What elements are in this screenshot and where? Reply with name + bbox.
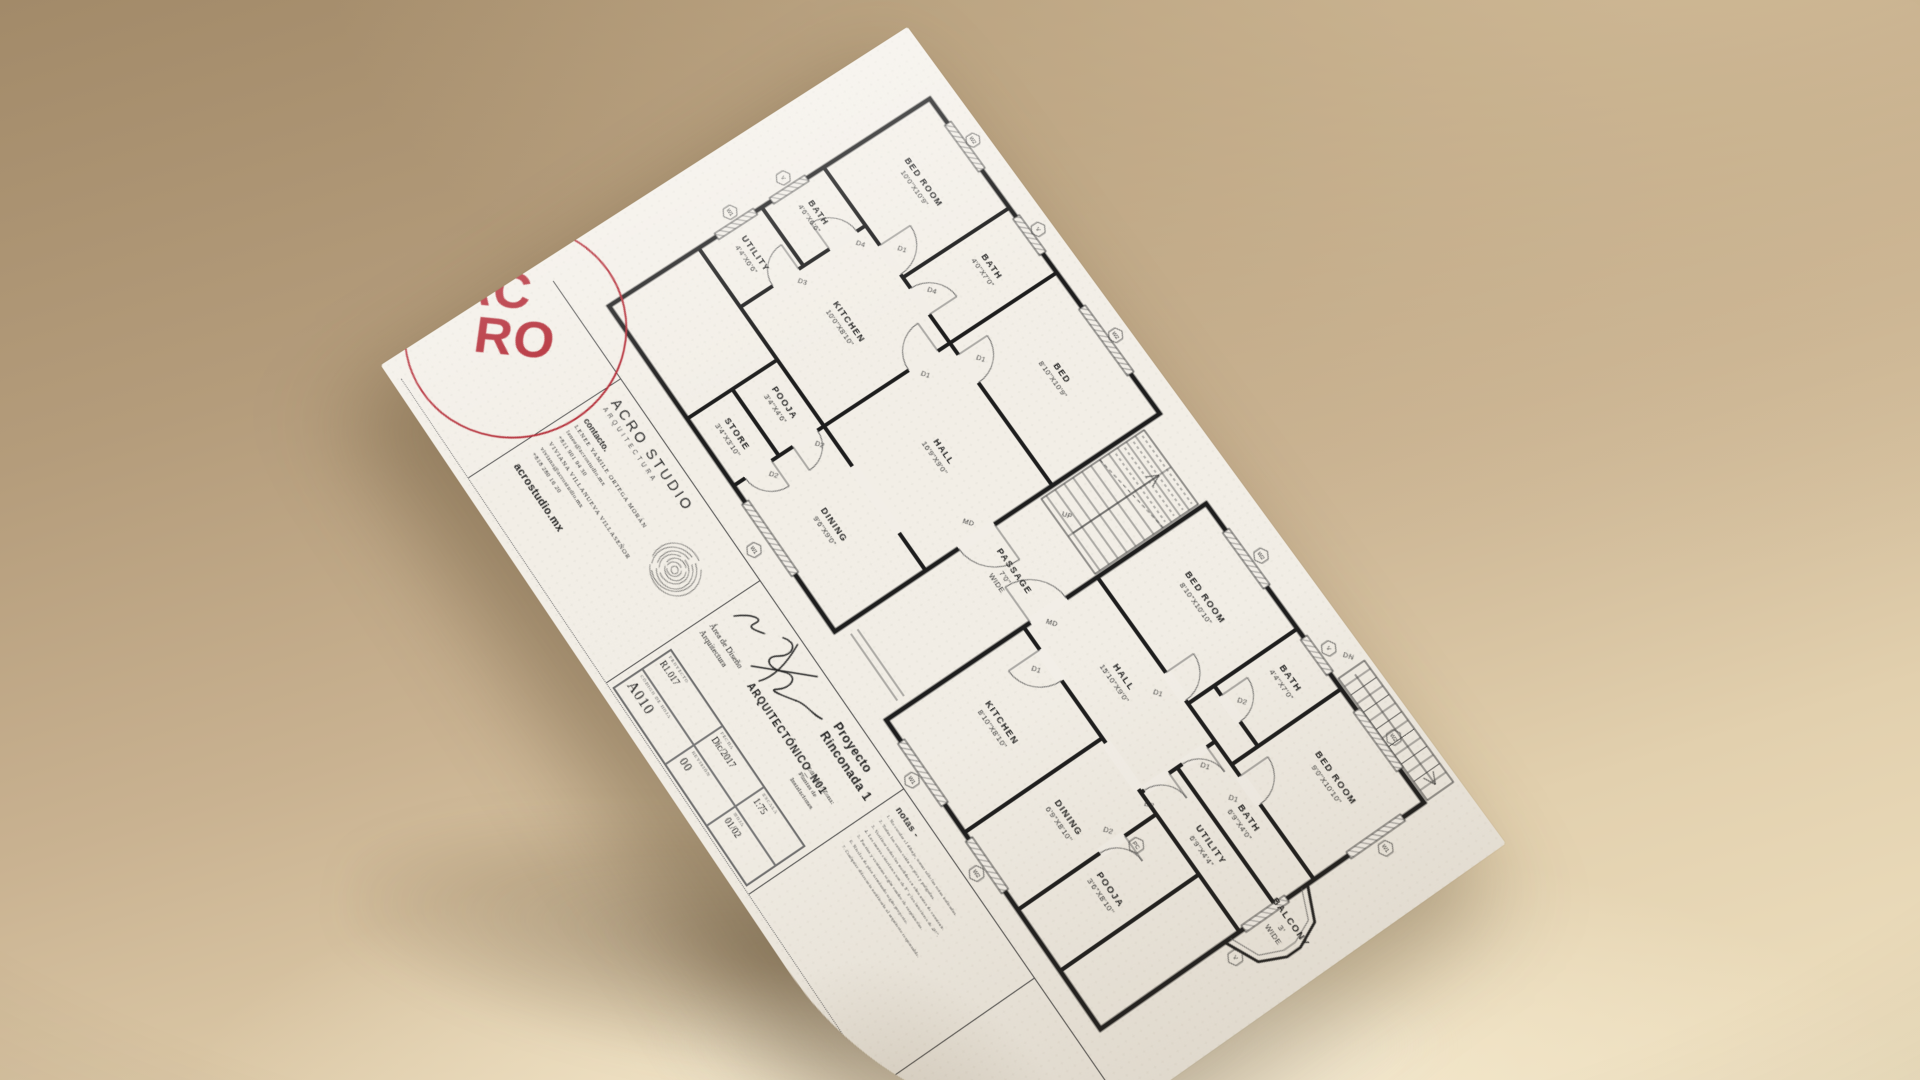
room-label: BED ROOM9'0"X10'10" bbox=[1304, 749, 1359, 813]
svg-text:W2: W2 bbox=[1255, 551, 1265, 561]
staircase-down bbox=[1338, 661, 1453, 801]
svg-text:V: V bbox=[1231, 955, 1239, 962]
logo-line2: RO bbox=[471, 312, 558, 366]
svg-text:V: V bbox=[1034, 227, 1041, 233]
door-tag: D1 bbox=[1152, 689, 1164, 699]
svg-text:W2: W2 bbox=[971, 869, 981, 880]
room-label: BATH4'0"X7'0" bbox=[969, 250, 1006, 288]
room-label: BED ROOM8'10"X10'10" bbox=[1174, 569, 1228, 631]
door-tag: D4 bbox=[855, 240, 866, 249]
room-label: HALL16'9"X9'0" bbox=[920, 433, 960, 476]
door-tag: MD bbox=[962, 518, 975, 528]
svg-text:W2: W2 bbox=[967, 136, 976, 145]
room-label: BED ROOM10'0"X10'9" bbox=[894, 156, 945, 214]
room-label: KITCHEN8'10"X8'10" bbox=[974, 699, 1021, 753]
room-label: BED8'10"X10'9" bbox=[1037, 353, 1080, 400]
mockup-scene: BED ROOM10'0"X10'9"BATH4'0"X7'0"BED8'10"… bbox=[0, 0, 1920, 1080]
door-tag: DN bbox=[1342, 652, 1355, 662]
svg-text:V: V bbox=[779, 175, 786, 181]
acro-logo-text: AC RO bbox=[445, 263, 564, 365]
room-label: BATH6'9"X4'0" bbox=[1225, 801, 1264, 843]
door-tag: D1 bbox=[1199, 762, 1211, 772]
svg-text:V: V bbox=[1324, 646, 1331, 653]
room-label: PASSAGE7'0"WIDE bbox=[978, 546, 1035, 607]
room-label: BATH4'4"X7'0" bbox=[1267, 661, 1305, 702]
svg-text:W1: W1 bbox=[748, 546, 758, 556]
room-label: DINING9'6"X9'0" bbox=[810, 506, 850, 550]
window-tag: V bbox=[1225, 947, 1247, 968]
door-tag: D1 bbox=[1228, 794, 1240, 804]
room-label: DINING6'9"X8'10" bbox=[1043, 798, 1085, 844]
door-tag: D1 bbox=[975, 355, 986, 364]
room-label: POOJA3'4"X4'6" bbox=[761, 384, 800, 426]
door-tag: D1 bbox=[897, 245, 908, 254]
svg-text:W2: W2 bbox=[1110, 331, 1120, 341]
staircase-up bbox=[1041, 430, 1198, 574]
room-label: POOJA3'6"X8'10" bbox=[1085, 870, 1126, 916]
door-tag: D2 bbox=[814, 440, 826, 449]
svg-text:W1: W1 bbox=[1380, 844, 1390, 855]
door-tag: D2 bbox=[768, 471, 780, 480]
svg-text:PC: PC bbox=[1131, 841, 1141, 851]
door-tag: D4 bbox=[926, 287, 937, 296]
door-tag: MD bbox=[1045, 618, 1058, 628]
door-tag: D3 bbox=[797, 278, 808, 287]
door-tag: D1 bbox=[920, 371, 931, 380]
window-tag: W1 bbox=[1375, 838, 1396, 859]
door-tag: D2 bbox=[1143, 801, 1155, 811]
room-label: STORE3'4"X3'10" bbox=[713, 415, 753, 458]
zone-info: Edificio / Zona: Plantas de Instalacione… bbox=[787, 765, 848, 835]
entry-steps bbox=[851, 629, 904, 700]
door-tag: D2 bbox=[1236, 697, 1248, 707]
door-tag: D1 bbox=[1030, 665, 1042, 675]
window-tag: W1 bbox=[744, 540, 765, 560]
room-label: BATH4'6"X6'6" bbox=[796, 196, 832, 234]
svg-text:W1: W1 bbox=[906, 775, 916, 785]
room-label: KITCHEN10'0"X8'10" bbox=[822, 299, 867, 350]
room-label: UTILITY4'4"X6'6" bbox=[731, 234, 772, 279]
room-label: HALL15'10"X9'0" bbox=[1098, 656, 1142, 705]
svg-text:W1: W1 bbox=[725, 208, 734, 218]
door-tag: D2 bbox=[1102, 826, 1114, 836]
